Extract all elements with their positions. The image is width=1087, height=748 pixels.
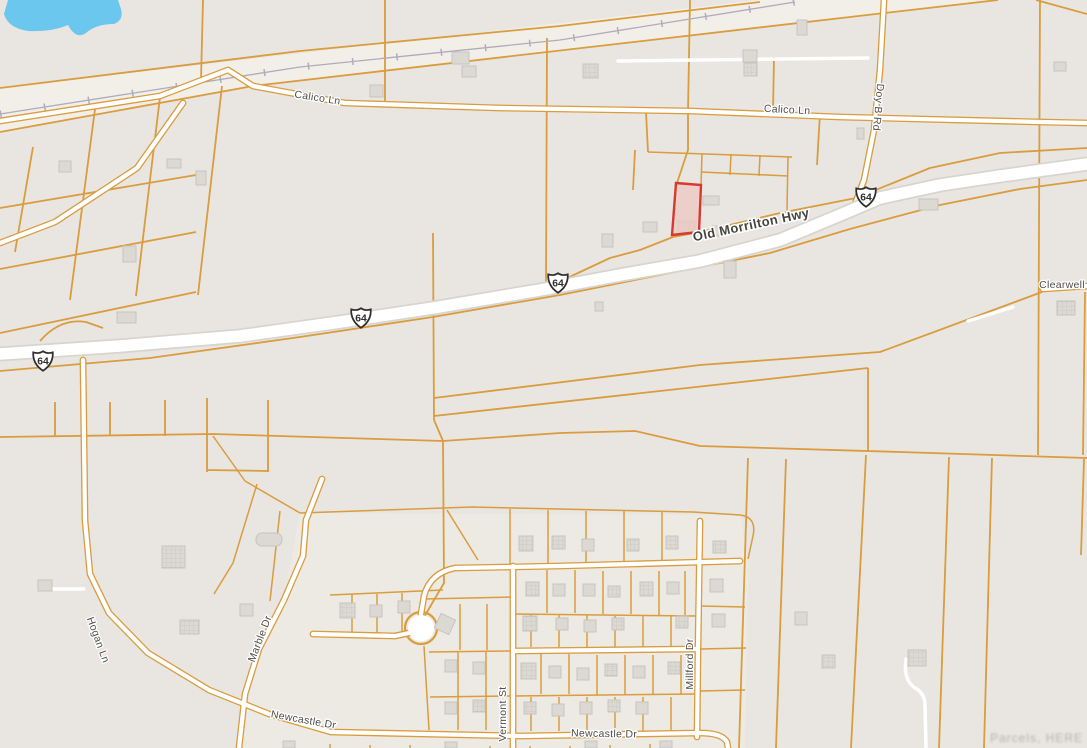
pond-water	[4, 0, 122, 35]
road-label-calico-ln-2: Calico Ln	[764, 103, 811, 117]
svg-text:64: 64	[860, 193, 872, 204]
road-label-hogan-ln: Hogan Ln	[84, 615, 112, 664]
svg-text:64: 64	[355, 314, 367, 325]
road-old-morrilton-hwy-us64	[0, 164, 1087, 354]
cul-de-sac	[408, 615, 434, 641]
railroad-corridor-band	[0, 0, 998, 132]
road-label-doy-b-rd: Doy B Rd	[870, 83, 886, 131]
svg-text:64: 64	[37, 357, 49, 368]
road-label-millford-dr: Millford Dr	[684, 638, 696, 689]
road-label-newcastle-dr-2: Newcastle Dr	[571, 727, 637, 740]
road-label-vermont-st: Vermont St	[497, 687, 509, 742]
svg-text:64: 64	[552, 279, 564, 290]
map-attribution-watermark: Parcels, HERE	[990, 731, 1083, 745]
road-label-clearwell: Clearwell	[1039, 279, 1085, 291]
map-canvas[interactable]: Calico Ln Calico Ln Doy B Rd Old Morrilt…	[0, 0, 1087, 748]
road-label-calico-ln: Calico Ln	[294, 88, 342, 107]
parcel-map-svg[interactable]: Calico Ln Calico Ln Doy B Rd Old Morrilt…	[0, 0, 1087, 748]
highlighted-parcel[interactable]	[672, 183, 701, 235]
